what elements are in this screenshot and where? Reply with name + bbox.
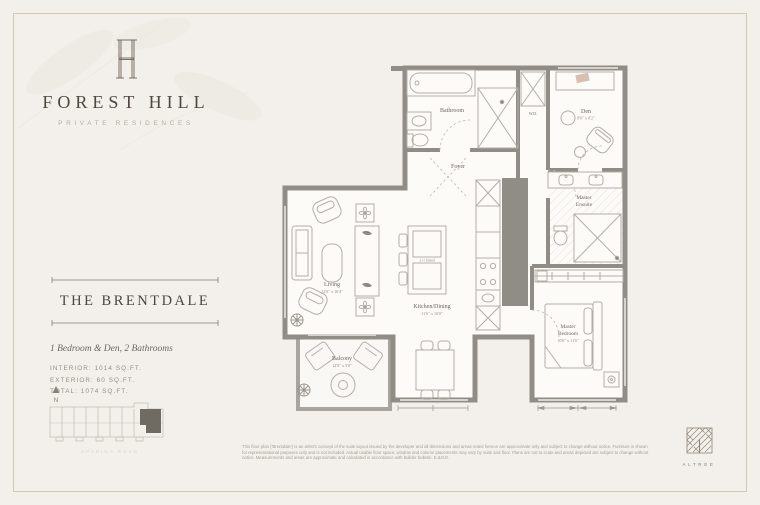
- room-label-den: Den: [581, 109, 591, 115]
- keyplan-street-label: SPADINA ROAD: [81, 449, 139, 454]
- room-label-bedroom-1: Master: [561, 324, 576, 330]
- ensuite-vanity: [548, 172, 622, 188]
- developer-name: ALTREE: [676, 462, 722, 467]
- room-dim-living: 12'0" x 16'4": [321, 289, 343, 294]
- room-dim-kitchen: 11'6" x 16'0": [421, 311, 443, 316]
- fh-monogram-icon: [107, 36, 145, 82]
- ensuite-toilet: [554, 226, 567, 245]
- developer-logo: ALTREE: [676, 427, 722, 467]
- unit-info-panel: THE BRENTDALE 1 Bedroom & Den, 2 Bathroo…: [50, 271, 220, 398]
- brand-logo: FOREST HILL PRIVATE RESIDENCES: [42, 36, 210, 127]
- room-label-foyer: Foyer: [451, 164, 465, 170]
- room-label-ensuite-2: Ensuite: [576, 202, 593, 208]
- disclaimer-text: This floor plan ('Brentdale') is an arti…: [242, 444, 672, 461]
- wall-stub: [391, 66, 406, 71]
- island-label: 2+1 Island: [419, 259, 435, 263]
- service-shaft: [502, 178, 528, 306]
- dimension-marks: [398, 405, 616, 411]
- room-label-bedroom-2: Bedroom: [558, 331, 579, 337]
- room-dim-balcony: 12'0" x 5'0": [332, 363, 352, 368]
- floorplan: Bathroom W.D. Den 8'6" x 8'2" Foyer Mast…: [280, 58, 645, 433]
- disclaimer-line-1: This floor plan ('Brentdale') is an arti…: [242, 444, 672, 450]
- altree-logo-icon: [686, 427, 713, 454]
- room-label-balcony: Balcony: [332, 356, 352, 362]
- balcony-plant: [298, 384, 310, 396]
- ensuite-shower: [574, 214, 621, 262]
- divider-top: [50, 276, 220, 284]
- plant: [291, 314, 303, 326]
- room-label-kitchen: Kitchen/Dining: [413, 304, 450, 310]
- room-label-wd: W.D.: [529, 112, 537, 116]
- room-label-ensuite-1: Master: [577, 195, 592, 201]
- disclaimer-line-3: notice. Measurements and areas are appro…: [242, 455, 672, 461]
- divider-bottom: [50, 319, 220, 327]
- unit-type: 1 Bedroom & Den, 2 Bathrooms: [50, 344, 220, 354]
- brochure-page: FOREST HILL PRIVATE RESIDENCES THE BRENT…: [0, 0, 760, 505]
- north-arrow-icon: [53, 386, 60, 393]
- keyplan-unit-highlight: [140, 409, 161, 433]
- keyplan: N SPADINA ROAD: [36, 383, 186, 471]
- room-label-living: Living: [324, 282, 340, 288]
- unit-name: THE BRENTDALE: [50, 293, 220, 310]
- north-label: N: [54, 397, 59, 404]
- stat-interior: INTERIOR: 1014 SQ.FT.: [50, 363, 220, 375]
- room-dim-den: 8'6" x 8'2": [577, 116, 595, 121]
- brand-name: FOREST HILL: [42, 92, 210, 113]
- brand-tagline: PRIVATE RESIDENCES: [42, 120, 210, 127]
- room-label-bathroom: Bathroom: [440, 108, 464, 114]
- room-dim-bedroom: 10'6" x 11'6": [557, 338, 579, 343]
